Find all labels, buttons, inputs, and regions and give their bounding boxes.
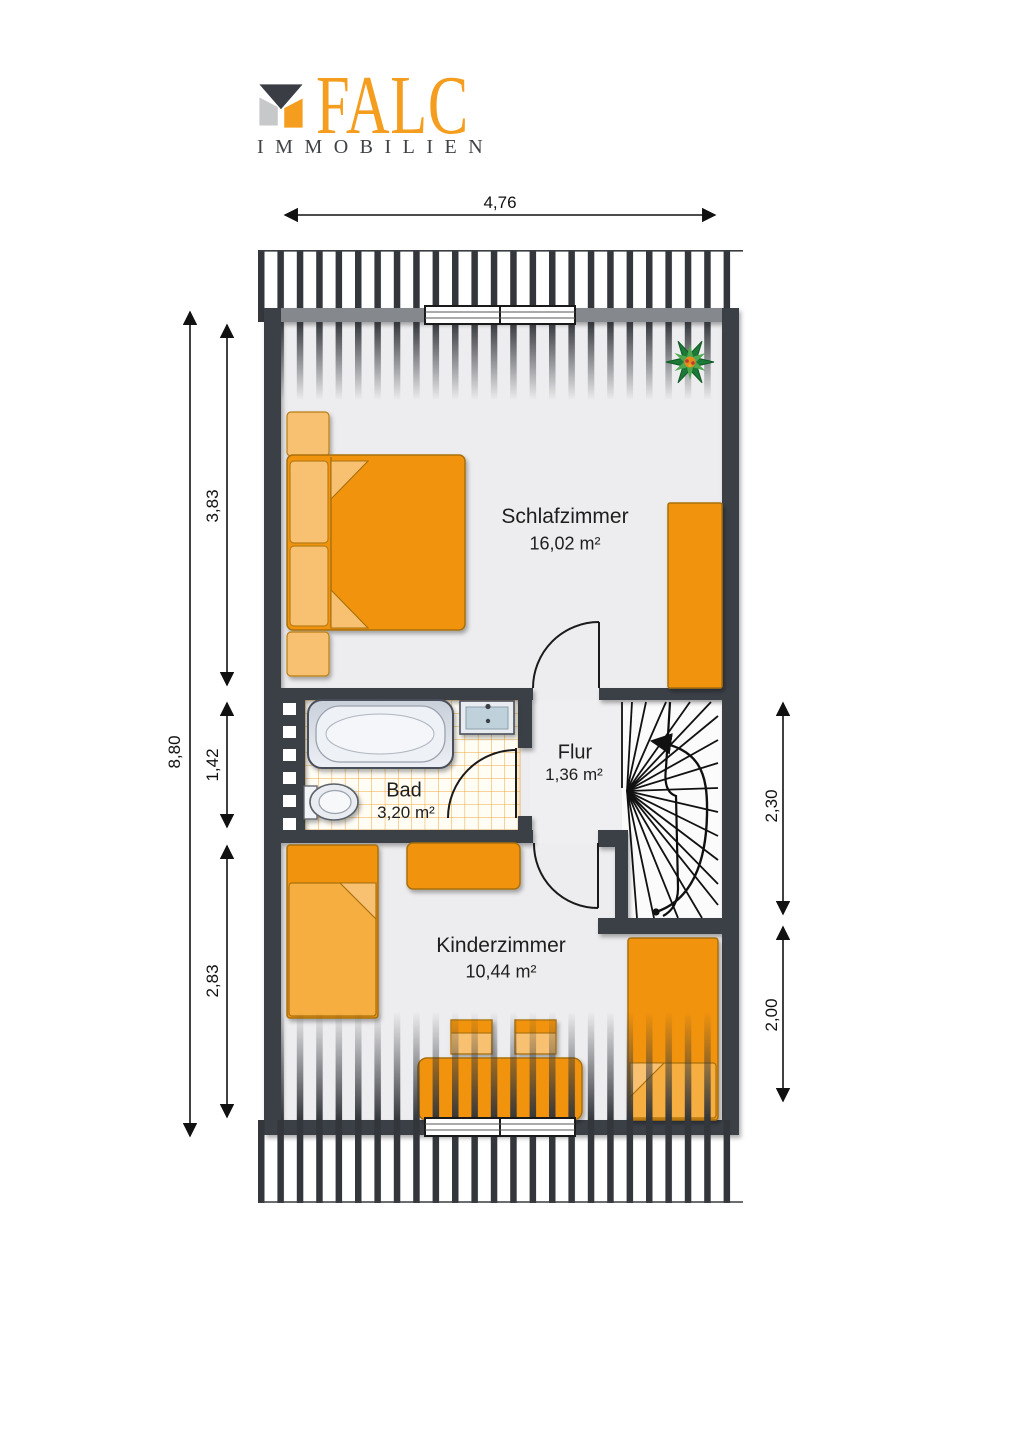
toilet-icon xyxy=(304,784,358,820)
room-area-flur: 1,36 m² xyxy=(545,765,603,785)
dim-top-width: 4,76 xyxy=(483,193,516,213)
room-label-kinderzimmer: Kinderzimmer xyxy=(436,934,566,958)
room-label-flur: Flur xyxy=(558,742,592,765)
dim-left-middle: 1,42 xyxy=(203,748,223,781)
room-label-bad: Bad xyxy=(386,780,422,803)
room-area-schlafzimmer: 16,02 m² xyxy=(529,534,600,555)
knee-wall xyxy=(264,700,305,830)
window-top xyxy=(425,306,575,324)
dim-left-total: 8,80 xyxy=(165,735,185,768)
sink-icon xyxy=(460,701,514,734)
kids-bed-left xyxy=(287,845,378,1018)
roof-slope-fade-top xyxy=(281,322,722,400)
pillow xyxy=(290,546,328,626)
room-area-bad: 3,20 m² xyxy=(377,803,435,823)
window-bottom xyxy=(425,1118,575,1136)
bathtub-icon xyxy=(308,700,453,768)
pillow xyxy=(290,461,328,543)
dim-left-upper: 3,83 xyxy=(203,489,223,522)
room-label-schlafzimmer: Schlafzimmer xyxy=(501,505,628,529)
wall-right xyxy=(722,308,739,1120)
dim-right-upper: 2,30 xyxy=(762,789,782,822)
floor-plan-page: FALC IMMOBILIEN xyxy=(0,0,1018,1440)
side-table xyxy=(407,843,520,889)
nightstand-bottom xyxy=(287,632,329,676)
dim-left-lower: 2,83 xyxy=(203,964,223,997)
roof-slope-fade-bottom xyxy=(281,1012,722,1120)
room-area-kinderzimmer: 10,44 m² xyxy=(465,962,536,983)
dim-right-lower: 2,00 xyxy=(762,998,782,1031)
floor-plan-drawing xyxy=(0,0,1018,1440)
wardrobe xyxy=(668,503,722,688)
nightstand-top xyxy=(287,412,329,456)
